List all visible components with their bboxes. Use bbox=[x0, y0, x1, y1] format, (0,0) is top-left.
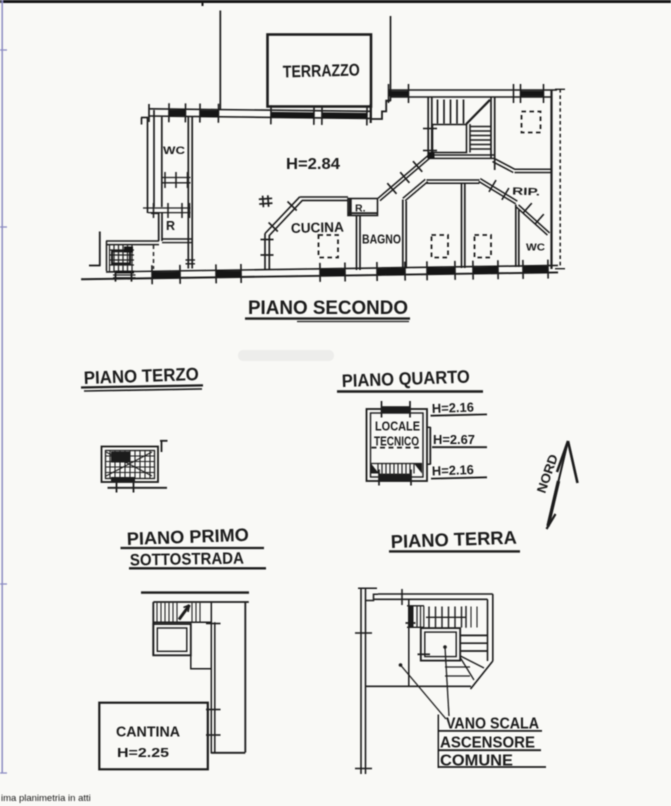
svg-text:LOCALE: LOCALE bbox=[375, 420, 420, 434]
svg-text:H=2.67: H=2.67 bbox=[433, 432, 475, 447]
svg-text:PIANO QUARTO: PIANO QUARTO bbox=[341, 367, 470, 391]
svg-text:VANO SCALA: VANO SCALA bbox=[446, 716, 539, 733]
svg-text:PIANO TERRA: PIANO TERRA bbox=[390, 527, 517, 552]
svg-text:CUCINA: CUCINA bbox=[291, 219, 344, 236]
svg-text:ASCENSORE: ASCENSORE bbox=[440, 735, 535, 752]
svg-text:CANTINA: CANTINA bbox=[116, 725, 181, 741]
svg-text:H=2.25: H=2.25 bbox=[117, 745, 169, 760]
svg-text:SOTTOSTRADA: SOTTOSTRADA bbox=[130, 550, 244, 570]
svg-text:R.: R. bbox=[355, 203, 366, 215]
svg-text:WC: WC bbox=[163, 145, 185, 157]
svg-text:TECNICO: TECNICO bbox=[374, 435, 419, 449]
svg-text:RIP.: RIP. bbox=[512, 186, 541, 199]
svg-text:WC: WC bbox=[526, 242, 545, 254]
svg-text:PIANO SECONDO: PIANO SECONDO bbox=[248, 298, 408, 319]
svg-text:PIANO TERZO: PIANO TERZO bbox=[83, 364, 199, 388]
svg-text:TERRAZZO: TERRAZZO bbox=[283, 60, 360, 81]
svg-text:H=2.16: H=2.16 bbox=[432, 400, 474, 416]
svg-text:R: R bbox=[166, 219, 175, 233]
svg-text:H=2.84: H=2.84 bbox=[286, 156, 340, 173]
svg-text:H=2.16: H=2.16 bbox=[432, 462, 474, 478]
svg-text:ima planimetria in atti: ima planimetria in atti bbox=[1, 793, 91, 804]
svg-text:BAGNO: BAGNO bbox=[362, 233, 401, 247]
svg-text:PIANO PRIMO: PIANO PRIMO bbox=[126, 525, 249, 549]
